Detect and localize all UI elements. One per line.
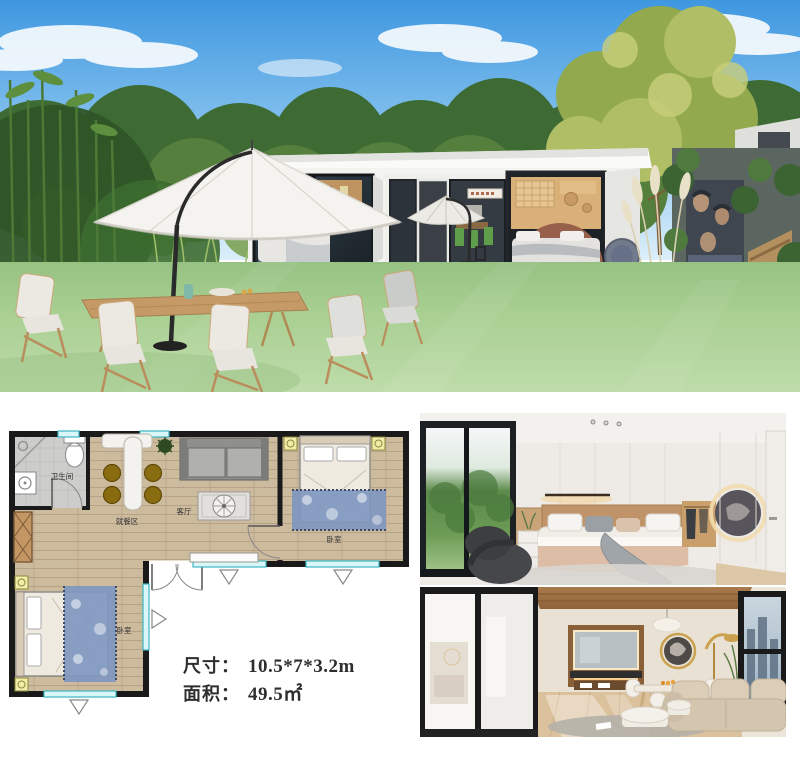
nightstand — [15, 678, 28, 691]
size-label: 尺寸： — [183, 652, 240, 678]
plant — [156, 437, 174, 455]
window — [306, 561, 379, 567]
room-label-bathroom: 卫生间 — [51, 471, 74, 481]
room-label-bedroom-left: 卧室 — [117, 625, 132, 635]
nightstand — [15, 576, 28, 589]
round-mirror — [711, 486, 765, 540]
living-interior — [420, 587, 786, 737]
area-value: 49.5㎡ — [248, 679, 303, 706]
door-handle — [769, 517, 777, 520]
window — [143, 584, 149, 650]
size-value: 10.5*7*3.2m — [248, 656, 355, 678]
room-label-living: 客厅 — [177, 506, 192, 516]
specs-block: 尺寸： 10.5*7*3.2m 面积： 49.5㎡ — [183, 652, 355, 706]
room-label-bedroom-right: 卧室 — [327, 534, 342, 544]
hanging-clothes — [686, 509, 696, 539]
room-label-dining: 就餐区 — [116, 516, 139, 526]
bedroom-module-right — [507, 172, 605, 266]
toilet — [64, 436, 85, 467]
coffee-table-rug — [198, 492, 250, 520]
exterior-render — [0, 0, 800, 392]
round-wall-art — [661, 634, 695, 668]
nightstand — [284, 437, 297, 450]
wall-light — [541, 494, 613, 504]
vanity-counter — [570, 671, 642, 678]
area-label: 面积： — [183, 680, 240, 706]
door-sign-plaque — [468, 189, 502, 198]
listing-composite: 卫生间 就餐区 客厅 卧室 卧室 尺寸： 10.5*7*3.2m 面积： 49.… — [0, 0, 800, 765]
bed-rug — [292, 490, 386, 530]
glass-doors-left — [420, 587, 538, 737]
sofa — [180, 438, 268, 480]
bedroom-interior — [420, 413, 786, 585]
interior-photo-bedroom — [420, 413, 786, 585]
window — [58, 431, 79, 437]
door-right — [766, 431, 786, 573]
tv-cabinet — [190, 553, 258, 562]
hallway-cabinet — [14, 512, 32, 562]
nightstand — [372, 437, 385, 450]
exterior-render-image — [0, 0, 800, 392]
bedroom-left — [15, 576, 116, 691]
bed-rug — [64, 586, 116, 682]
washing-machine — [14, 472, 36, 494]
vase — [184, 284, 193, 299]
wood-ceiling — [532, 587, 752, 609]
interior-photo-living — [420, 587, 786, 737]
area-row: 面积： 49.5㎡ — [183, 679, 355, 706]
window — [44, 691, 116, 697]
size-row: 尺寸： 10.5*7*3.2m — [183, 652, 355, 679]
